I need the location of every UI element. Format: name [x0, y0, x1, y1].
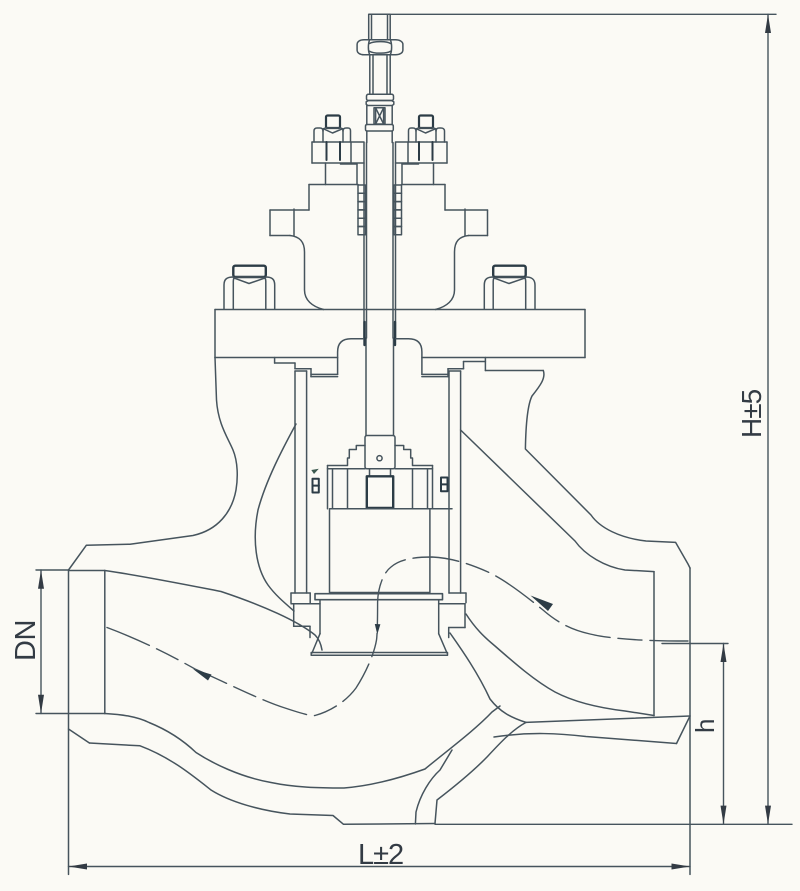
svg-text:DN: DN: [10, 620, 42, 661]
svg-text:h: h: [690, 719, 720, 733]
svg-text:L±2: L±2: [358, 839, 403, 871]
svg-text:H±5: H±5: [736, 389, 767, 438]
